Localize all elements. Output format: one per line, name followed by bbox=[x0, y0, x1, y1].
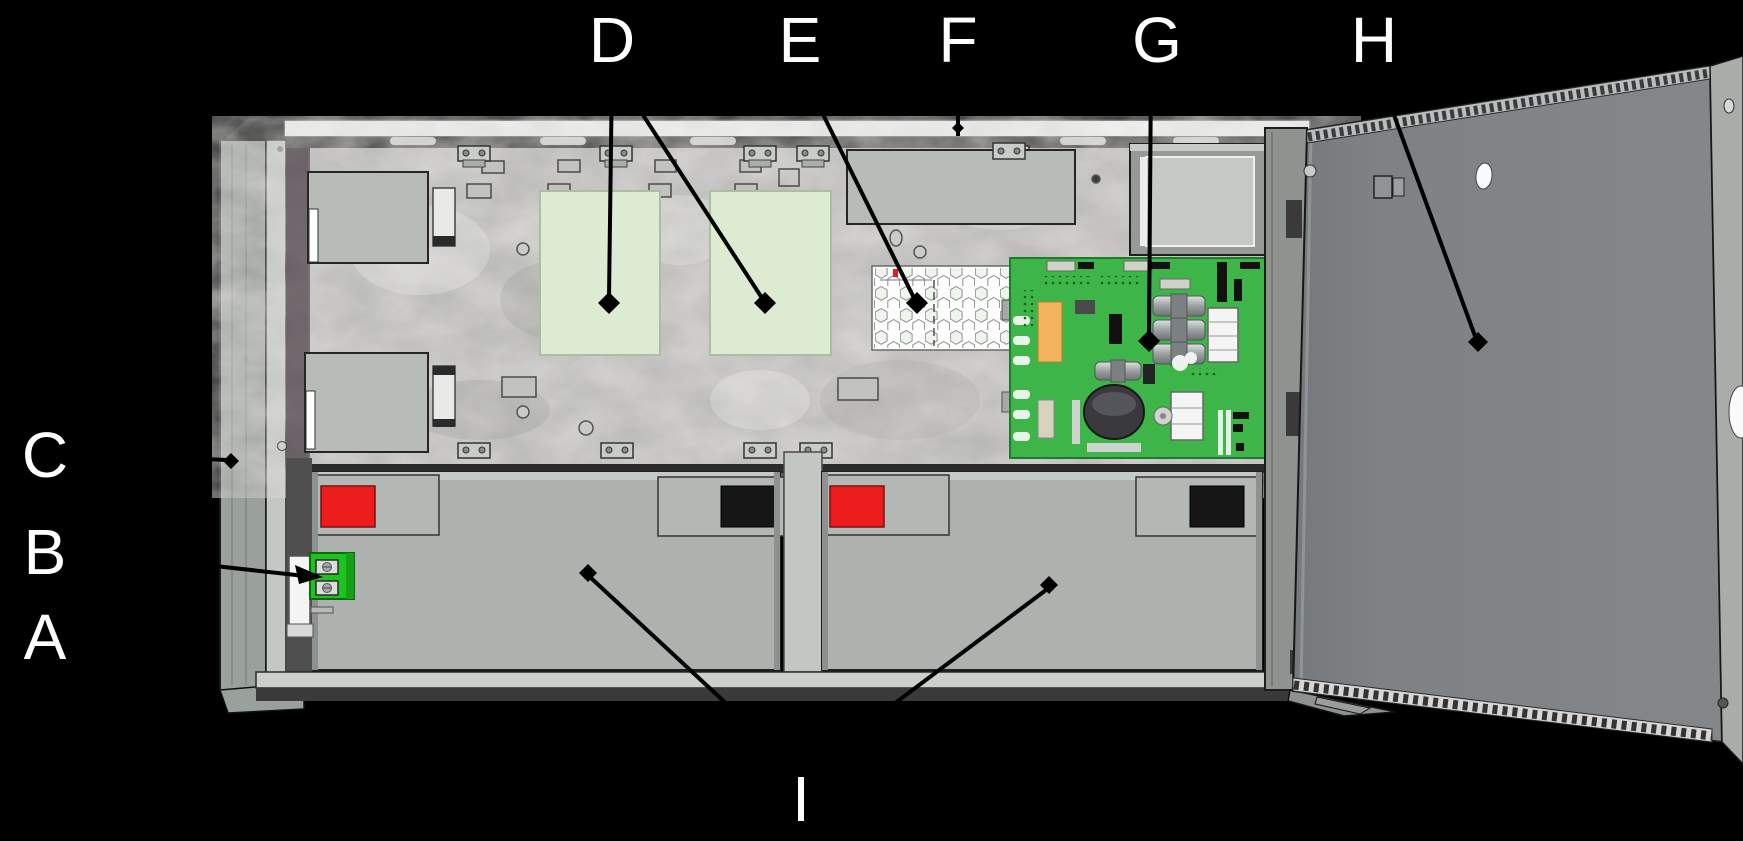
bracket-pin bbox=[311, 607, 333, 613]
rail-notch bbox=[540, 137, 586, 145]
rail-notch bbox=[1060, 137, 1106, 145]
pcb-solder-dots bbox=[1100, 276, 1140, 286]
door-latch-bracket-2 bbox=[1393, 178, 1404, 196]
callout-label-e: E bbox=[779, 4, 822, 76]
enclosure-diagram: D E F G H C B A I bbox=[0, 0, 1743, 841]
pcb-header bbox=[1109, 314, 1122, 344]
bracket-foot bbox=[287, 624, 313, 637]
grille-red-mark bbox=[893, 269, 898, 277]
transformer-box-2 bbox=[305, 353, 428, 452]
door-screw-top bbox=[1724, 99, 1734, 113]
battery-1 bbox=[312, 472, 784, 670]
door-inner-face bbox=[1293, 66, 1722, 742]
transformer-box-1 bbox=[308, 172, 428, 263]
battery-mounting-bracket bbox=[289, 556, 310, 628]
callout-line-g bbox=[1149, 70, 1151, 334]
rail-notch bbox=[690, 137, 736, 145]
power-supply-cover bbox=[847, 143, 1075, 224]
pcb-transformer bbox=[1038, 302, 1062, 362]
callout-label-d: D bbox=[589, 4, 635, 76]
pcb-piezo bbox=[1084, 385, 1144, 439]
battery-2-black-label bbox=[1190, 486, 1244, 527]
callout-label-a: A bbox=[24, 601, 67, 673]
main-circuit-board bbox=[1002, 258, 1275, 458]
callout-label-f: F bbox=[938, 4, 977, 76]
callout-label-i: I bbox=[792, 763, 810, 835]
pcb-solder-dots bbox=[1022, 290, 1036, 330]
battery-1-red-label bbox=[321, 486, 375, 527]
cabinet-door bbox=[1293, 56, 1743, 764]
callout-label-g: G bbox=[1132, 4, 1182, 76]
battery-1-black-label bbox=[721, 486, 775, 527]
top-panel-edge bbox=[284, 120, 1310, 137]
pcb-solder-dots bbox=[1040, 276, 1090, 288]
din-bracket-2 bbox=[433, 366, 455, 427]
flange-inner-fold bbox=[266, 140, 286, 690]
pcb-terminal-white-1 bbox=[1208, 308, 1238, 362]
flange-face bbox=[220, 140, 266, 690]
callout-label-c: C bbox=[22, 419, 68, 491]
door-latch-bracket bbox=[1374, 176, 1392, 198]
din-bracket-1 bbox=[433, 188, 455, 246]
door-screw-bottom bbox=[1718, 698, 1728, 708]
battery-divider bbox=[784, 452, 822, 672]
option-module-space-1 bbox=[540, 191, 660, 355]
option-module-space-2 bbox=[710, 191, 831, 355]
figure-panel-interior-diagram: D E F G H C B A I bbox=[0, 0, 1743, 841]
pcb-solder-dots bbox=[1190, 368, 1220, 378]
callout-label-b: B bbox=[24, 516, 67, 588]
pcb-ic-chip bbox=[1075, 300, 1095, 314]
sounder-grille bbox=[872, 266, 1011, 350]
battery-2 bbox=[822, 472, 1262, 670]
texture-blob bbox=[710, 370, 810, 430]
rail-notch bbox=[390, 137, 436, 145]
battery-2-red-label bbox=[830, 486, 884, 527]
bracket-screw bbox=[278, 442, 287, 451]
flange-hole bbox=[277, 146, 283, 152]
backbox-floor bbox=[256, 672, 1303, 701]
callout-label-h: H bbox=[1351, 4, 1397, 76]
hinge-screw bbox=[1304, 165, 1316, 177]
